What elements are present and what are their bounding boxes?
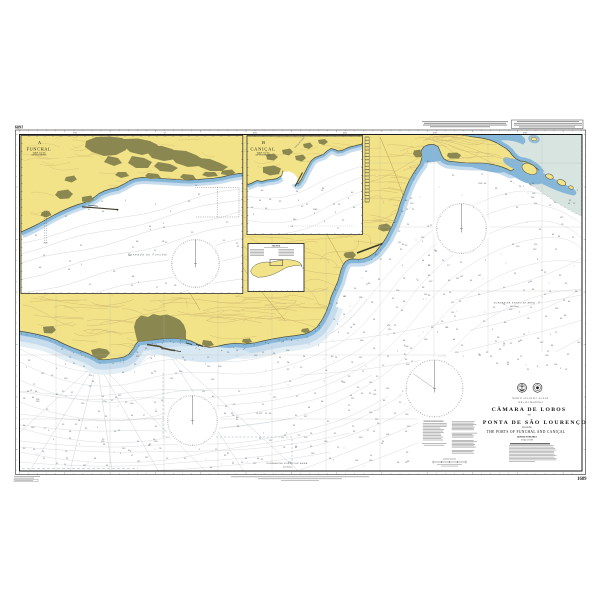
svg-text:INCLUDING: INCLUDING: [522, 427, 533, 429]
svg-text:16°50': 16°50': [343, 132, 348, 134]
svg-text:ILHA DA MADEIRA: ILHA DA MADEIRA: [518, 401, 543, 404]
svg-text:NORTH ATLANTIC OCEAN: NORTH ATLANTIC OCEAN: [512, 397, 548, 400]
svg-text:PONTA DE SÃO LOURENÇO: PONTA DE SÃO LOURENÇO: [483, 418, 587, 426]
svg-text:(see Note): (see Note): [510, 305, 519, 308]
svg-text:SCALE 1:12 500: SCALE 1:12 500: [257, 151, 270, 154]
svg-text:FUNCHAL: FUNCHAL: [27, 147, 52, 152]
svg-text:SCALE 1:75 000: SCALE 1:75 000: [521, 439, 533, 442]
svg-text:B: B: [262, 140, 265, 145]
svg-text:MADEIRA: MADEIRA: [272, 244, 281, 247]
svg-text:DEPTHS IN METRES: DEPTHS IN METRES: [32, 155, 47, 157]
svg-text:DEPTHS IN METRES: DEPTHS IN METRES: [256, 155, 271, 157]
svg-text:CANIÇAL: CANIÇAL: [250, 147, 275, 152]
svg-text:(see Note): (see Note): [283, 465, 292, 468]
svg-text:16°40': 16°40': [523, 132, 528, 134]
svg-text:CÂMARA DE LOBOS: CÂMARA DE LOBOS: [492, 405, 567, 413]
svg-text:16°55': 16°55': [253, 132, 258, 134]
svg-text:TO: TO: [527, 413, 530, 416]
svg-text:SUBMARINE EXERCISE AREA: SUBMARINE EXERCISE AREA: [494, 302, 536, 305]
svg-text:Enseada do Funchal: Enseada do Funchal: [128, 253, 168, 257]
svg-text:SUBMARINE EXERCISE AREA: SUBMARINE EXERCISE AREA: [266, 462, 308, 465]
svg-text:DEPTHS IN METRES: DEPTHS IN METRES: [517, 436, 538, 438]
svg-text:THE PORTS OF FUNCHAL AND CANIÇ: THE PORTS OF FUNCHAL AND CANIÇAL: [487, 430, 566, 434]
svg-text:17°: 17°: [164, 132, 167, 134]
svg-text:1689: 1689: [577, 477, 587, 482]
svg-text:SCALE 1:12 500: SCALE 1:12 500: [33, 151, 46, 154]
svg-text:1689: 1689: [15, 125, 23, 130]
svg-text:17°05': 17°05': [73, 132, 78, 134]
svg-text:16°45': 16°45': [433, 132, 438, 134]
